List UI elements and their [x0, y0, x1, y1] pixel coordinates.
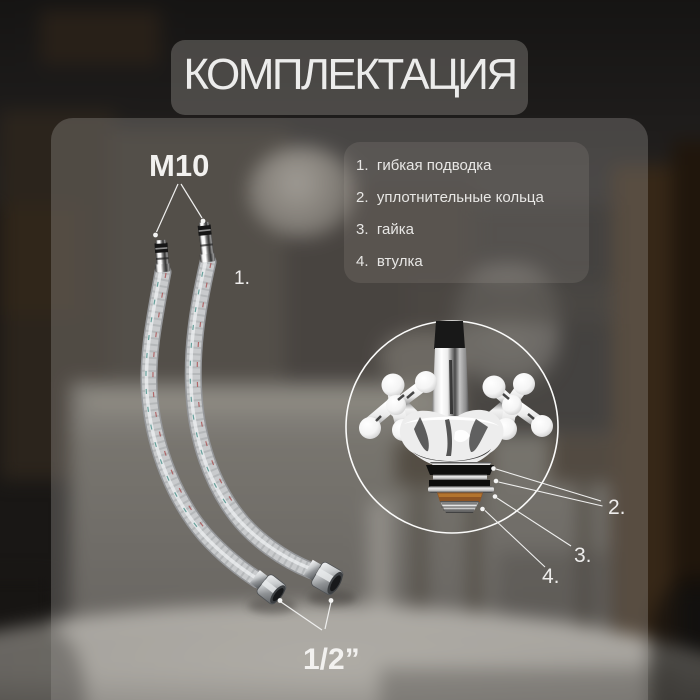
svg-text:3.: 3.	[574, 544, 592, 567]
svg-text:M10: M10	[149, 148, 209, 183]
svg-text:2.: 2.	[608, 496, 626, 519]
svg-text:1/2”: 1/2”	[303, 643, 360, 676]
svg-text:4.: 4.	[542, 565, 560, 588]
svg-text:1.: 1.	[234, 268, 250, 289]
